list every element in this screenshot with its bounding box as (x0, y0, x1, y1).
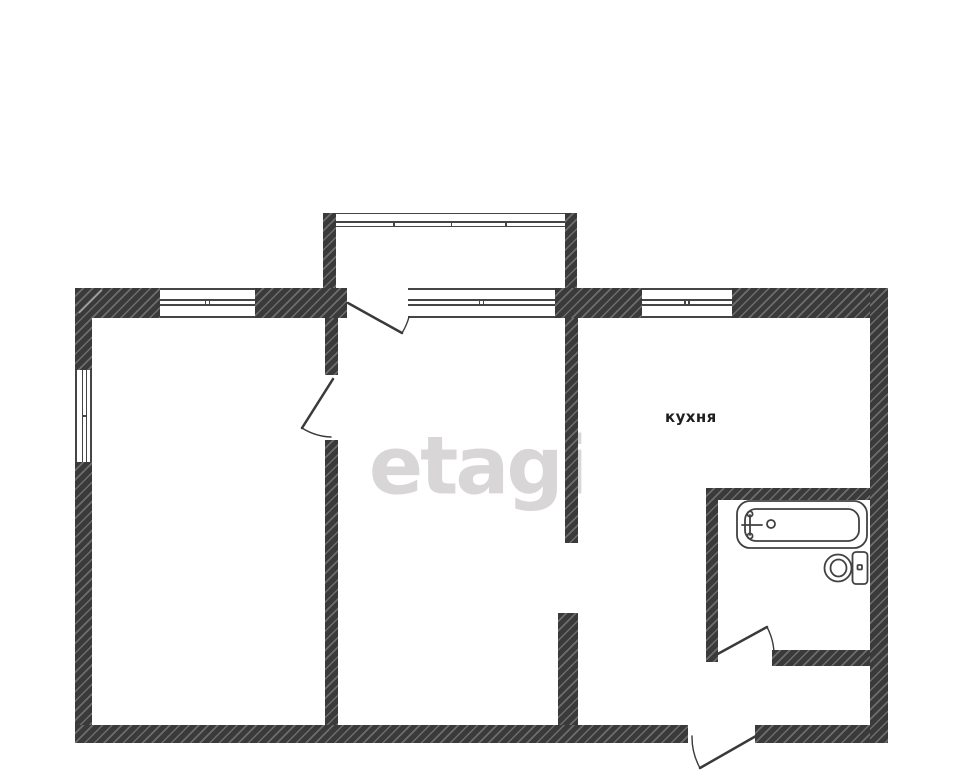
window-mullion (209, 299, 211, 306)
wall-interior-hall-stub (558, 613, 578, 725)
wall-interior-kitchen (565, 318, 578, 543)
wall-balcony-right (565, 213, 577, 288)
entrance-door-icon (692, 736, 756, 768)
wall-bathroom-bottom (772, 650, 870, 666)
wall-left-segment-2 (75, 462, 92, 743)
balcony-glazing (336, 213, 565, 227)
floor-plan: etagi (0, 0, 960, 780)
glazing-tick (451, 221, 453, 226)
window-mullion (483, 299, 485, 306)
window-frame-line (160, 299, 255, 301)
glazing-tick (393, 221, 395, 226)
glazing-tick (505, 221, 507, 226)
wall-top-segment-4 (732, 288, 888, 318)
wall-top-segment-3 (555, 288, 642, 318)
wall-top-segment-2 (255, 288, 347, 318)
bathroom-door-icon (714, 627, 774, 656)
window-mullion (479, 299, 481, 306)
window-under-balcony (408, 288, 555, 318)
window-frame-line (160, 304, 255, 306)
window-left-room-top (160, 288, 255, 318)
window-frame-line (408, 304, 555, 306)
watermark: etagi (369, 420, 585, 513)
wall-bathroom-top (706, 488, 870, 500)
toilet-icon (825, 552, 868, 584)
balcony-door-icon (348, 303, 409, 333)
window-frame-line (408, 299, 555, 301)
window-mullion (688, 299, 690, 306)
window-left-wall (75, 370, 92, 462)
wall-balcony-left (323, 213, 336, 288)
window-mullion (684, 299, 686, 306)
wall-bottom-segment-2 (755, 725, 888, 743)
left-room-door-icon (302, 379, 333, 437)
window-mullion (205, 299, 207, 306)
window-frame-line (642, 304, 732, 306)
wall-bathroom-left (706, 488, 718, 662)
window-mullion (82, 415, 88, 417)
window-kitchen (642, 288, 732, 318)
wall-right (870, 288, 888, 743)
room-label-kitchen: кухня (665, 408, 717, 426)
window-frame-line (642, 299, 732, 301)
wall-interior-leftroom-upper (325, 318, 338, 375)
wall-bottom-segment-1 (75, 725, 688, 743)
wall-left-segment-1 (75, 288, 92, 370)
bathtub-icon (737, 501, 867, 548)
wall-interior-leftroom-lower (325, 440, 338, 725)
